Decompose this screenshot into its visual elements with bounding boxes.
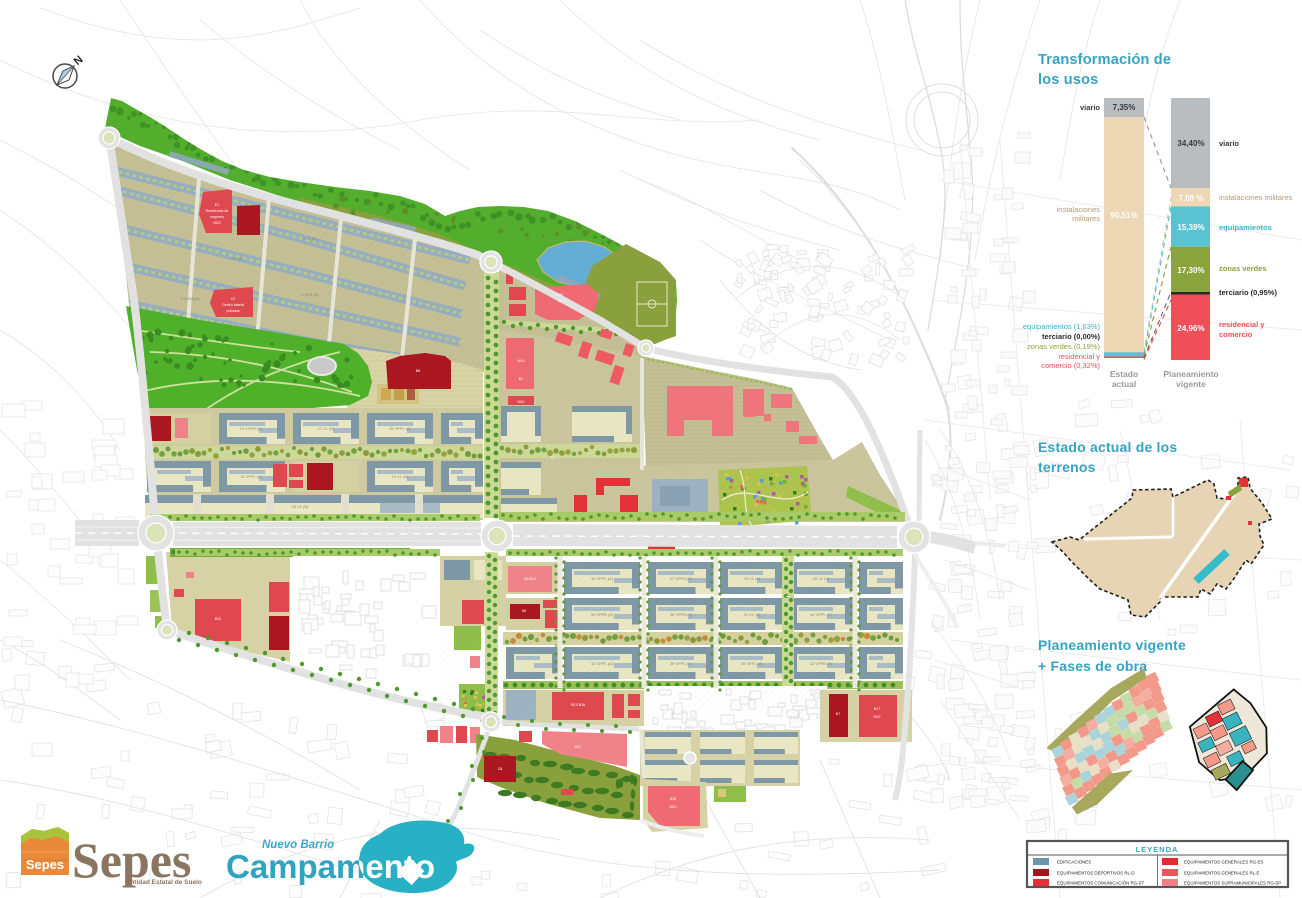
svg-text:Planeamiento vigente: Planeamiento vigente — [1038, 637, 1186, 653]
svg-text:M10: M10 — [670, 805, 677, 809]
svg-text:19 VPPL (A): 19 VPPL (A) — [389, 426, 412, 431]
svg-text:17,30%: 17,30% — [1177, 266, 1204, 275]
svg-text:24,96%: 24,96% — [1177, 324, 1204, 333]
svg-text:EQUIPAMIENTOS GENERALES RG-ES: EQUIPAMIENTOS GENERALES RG-ES — [1184, 860, 1263, 865]
svg-text:EQUIPAMIENTOS GENERALES RL-E: EQUIPAMIENTOS GENERALES RL-E — [1184, 871, 1260, 876]
svg-text:comercio: comercio — [1219, 330, 1253, 339]
svg-text:26 VL (B): 26 VL (B) — [292, 504, 309, 509]
svg-text:zonas verdes: zonas verdes — [1219, 264, 1267, 273]
svg-text:militares: militares — [1072, 214, 1100, 223]
svg-text:Estado: Estado — [1110, 369, 1138, 379]
svg-text:B8: B8 — [416, 369, 420, 373]
svg-text:17 VL (B): 17 VL (B) — [318, 426, 335, 431]
svg-text:C3: C3 — [558, 299, 563, 303]
svg-text:zonas verdes (0,19%): zonas verdes (0,19%) — [1027, 342, 1100, 351]
svg-text:34,40%: 34,40% — [1177, 139, 1204, 148]
svg-text:B11: B11 — [215, 617, 221, 621]
svg-text:15,39%: 15,39% — [1177, 223, 1204, 232]
svg-text:residencial y: residencial y — [1219, 320, 1265, 329]
svg-text:Estado actual de los: Estado actual de los — [1038, 439, 1177, 455]
svg-text:7,00 %: 7,00 % — [1179, 194, 1204, 203]
svg-text:19 VL (B): 19 VL (B) — [392, 474, 409, 479]
svg-text:LEYENDA: LEYENDA — [1136, 845, 1179, 854]
svg-text:los usos: los usos — [1038, 72, 1098, 88]
svg-text:viario: viario — [1219, 139, 1239, 148]
svg-text:equipamientos (1,63%): equipamientos (1,63%) — [1023, 322, 1101, 331]
svg-text:EDIFICACIONES: EDIFICACIONES — [1057, 860, 1091, 865]
svg-text:viario: viario — [1080, 103, 1100, 112]
svg-text:M11: M11 — [557, 293, 564, 297]
svg-text:terciario (0,95%): terciario (0,95%) — [1219, 288, 1277, 297]
svg-text:Sepes: Sepes — [26, 857, 64, 872]
svg-text:terciario (0,00%): terciario (0,00%) — [1042, 332, 1100, 341]
svg-text:90,51%: 90,51% — [1110, 211, 1137, 220]
svg-text:7,35%: 7,35% — [1113, 103, 1136, 112]
svg-text:+ Fases de obra: + Fases de obra — [1038, 658, 1147, 674]
svg-text:EQUIPAMIENTOS DEPORTIVOS RL-D: EQUIPAMIENTOS DEPORTIVOS RL-D — [1057, 871, 1135, 876]
svg-text:equipamientos: equipamientos — [1219, 223, 1272, 232]
svg-text:comercio (0,32%): comercio (0,32%) — [1041, 361, 1100, 370]
svg-text:15 VPPL (A): 15 VPPL (A) — [240, 474, 263, 479]
svg-text:terrenos: terrenos — [1038, 459, 1096, 475]
svg-text:actual: actual — [1112, 379, 1137, 389]
svg-text:Entidad Estatal de Suelo: Entidad Estatal de Suelo — [126, 879, 202, 886]
svg-text:vigente: vigente — [1176, 379, 1206, 389]
svg-text:15 VPPB (A): 15 VPPB (A) — [240, 426, 263, 431]
svg-text:B30: B30 — [670, 797, 676, 801]
svg-text:instalaciones militares: instalaciones militares — [1219, 193, 1293, 202]
svg-text:M17: M17 — [575, 745, 582, 749]
svg-text:residencial y: residencial y — [1058, 352, 1100, 361]
svg-text:instalaciones: instalaciones — [1057, 205, 1101, 214]
svg-text:Transformación de: Transformación de — [1038, 52, 1171, 68]
svg-text:EQUIPAMIENTOS SUPRAMUNICIPALES: EQUIPAMIENTOS SUPRAMUNICIPALES RG-SP — [1184, 881, 1281, 886]
svg-text:EQUIPAMIENTOS COMUNICACIÓN RG-: EQUIPAMIENTOS COMUNICACIÓN RG-ST — [1057, 881, 1144, 886]
svg-text:Planeamiento: Planeamiento — [1163, 369, 1218, 379]
svg-text:C8: C8 — [498, 767, 503, 771]
